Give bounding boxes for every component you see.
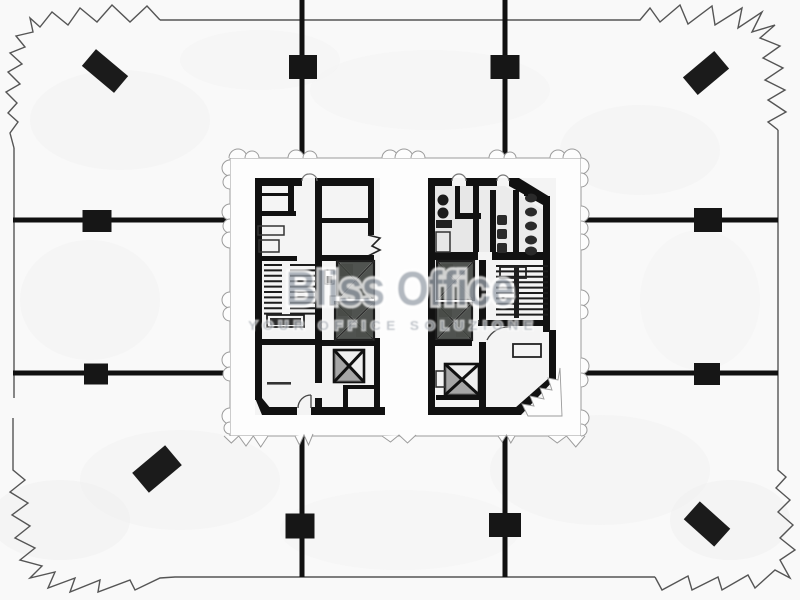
svg-text:YOUR OFFICE SOLUZIONE: YOUR OFFICE SOLUZIONE (248, 318, 538, 333)
svg-text:Bliss Office: Bliss Office (286, 263, 514, 316)
